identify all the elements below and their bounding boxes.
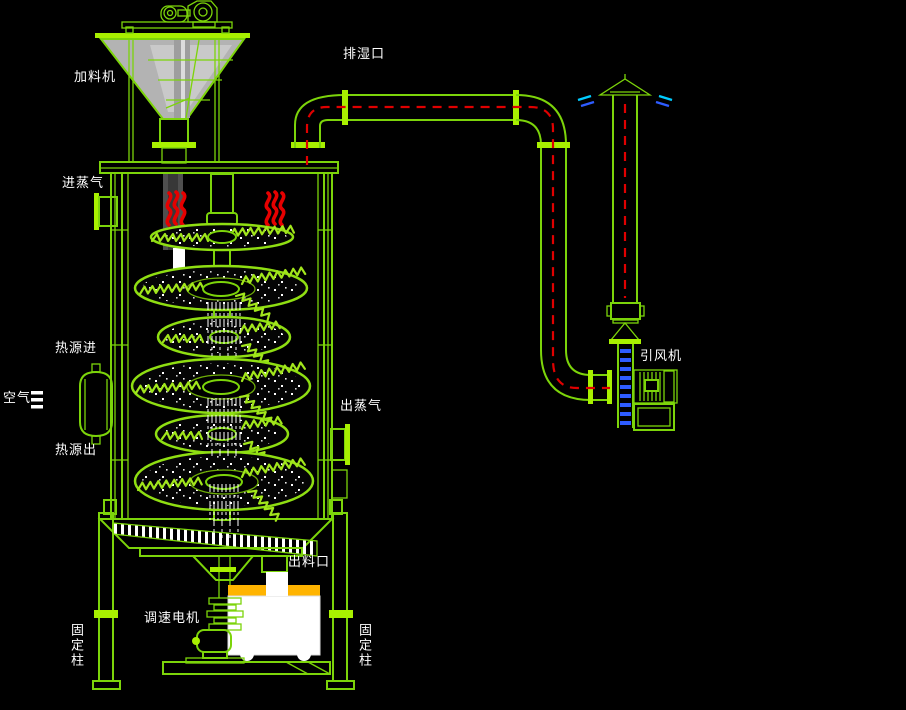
- label-discharge: 出料口: [288, 555, 330, 570]
- label-air: 空气: [3, 391, 31, 406]
- feeder-motor: [122, 1, 232, 33]
- base-skid: [163, 662, 330, 674]
- support-leg-right: [327, 500, 354, 689]
- diagram-canvas: [0, 0, 906, 710]
- fan-motor: [634, 370, 677, 430]
- label-exhaust-port: 排湿口: [343, 47, 385, 62]
- label-heat-out: 热源出: [55, 443, 97, 458]
- label-fixed-column-right: 固定柱: [356, 623, 370, 668]
- vent-cap-icon: [578, 74, 672, 106]
- feeder-hopper: [95, 33, 250, 163]
- label-steam-out: 出蒸气: [340, 399, 382, 414]
- label-feeder: 加料机: [74, 70, 116, 85]
- discharge-duct: [262, 556, 287, 572]
- drying-disc-1: [151, 224, 294, 250]
- process-diagram: 加料机 排湿口 进蒸气 热源进 空气 出蒸气 热源出 引风机 出料口 调速电机 …: [0, 0, 906, 710]
- air-tank: [80, 364, 112, 444]
- label-steam-in: 进蒸气: [62, 176, 104, 191]
- label-fan: 引风机: [640, 349, 682, 364]
- label-heat-in: 热源进: [55, 341, 97, 356]
- label-speed-motor: 调速电机: [144, 611, 200, 626]
- steam-inlet-nozzle: [94, 193, 117, 230]
- drying-disc-6: [135, 452, 313, 521]
- label-fixed-column-left: 固定柱: [68, 623, 82, 668]
- air-flow-icon: [31, 391, 43, 409]
- exhaust-stack: [613, 95, 637, 302]
- exhaust-pipe: [291, 90, 612, 404]
- steam-outlet-nozzle: [331, 424, 350, 498]
